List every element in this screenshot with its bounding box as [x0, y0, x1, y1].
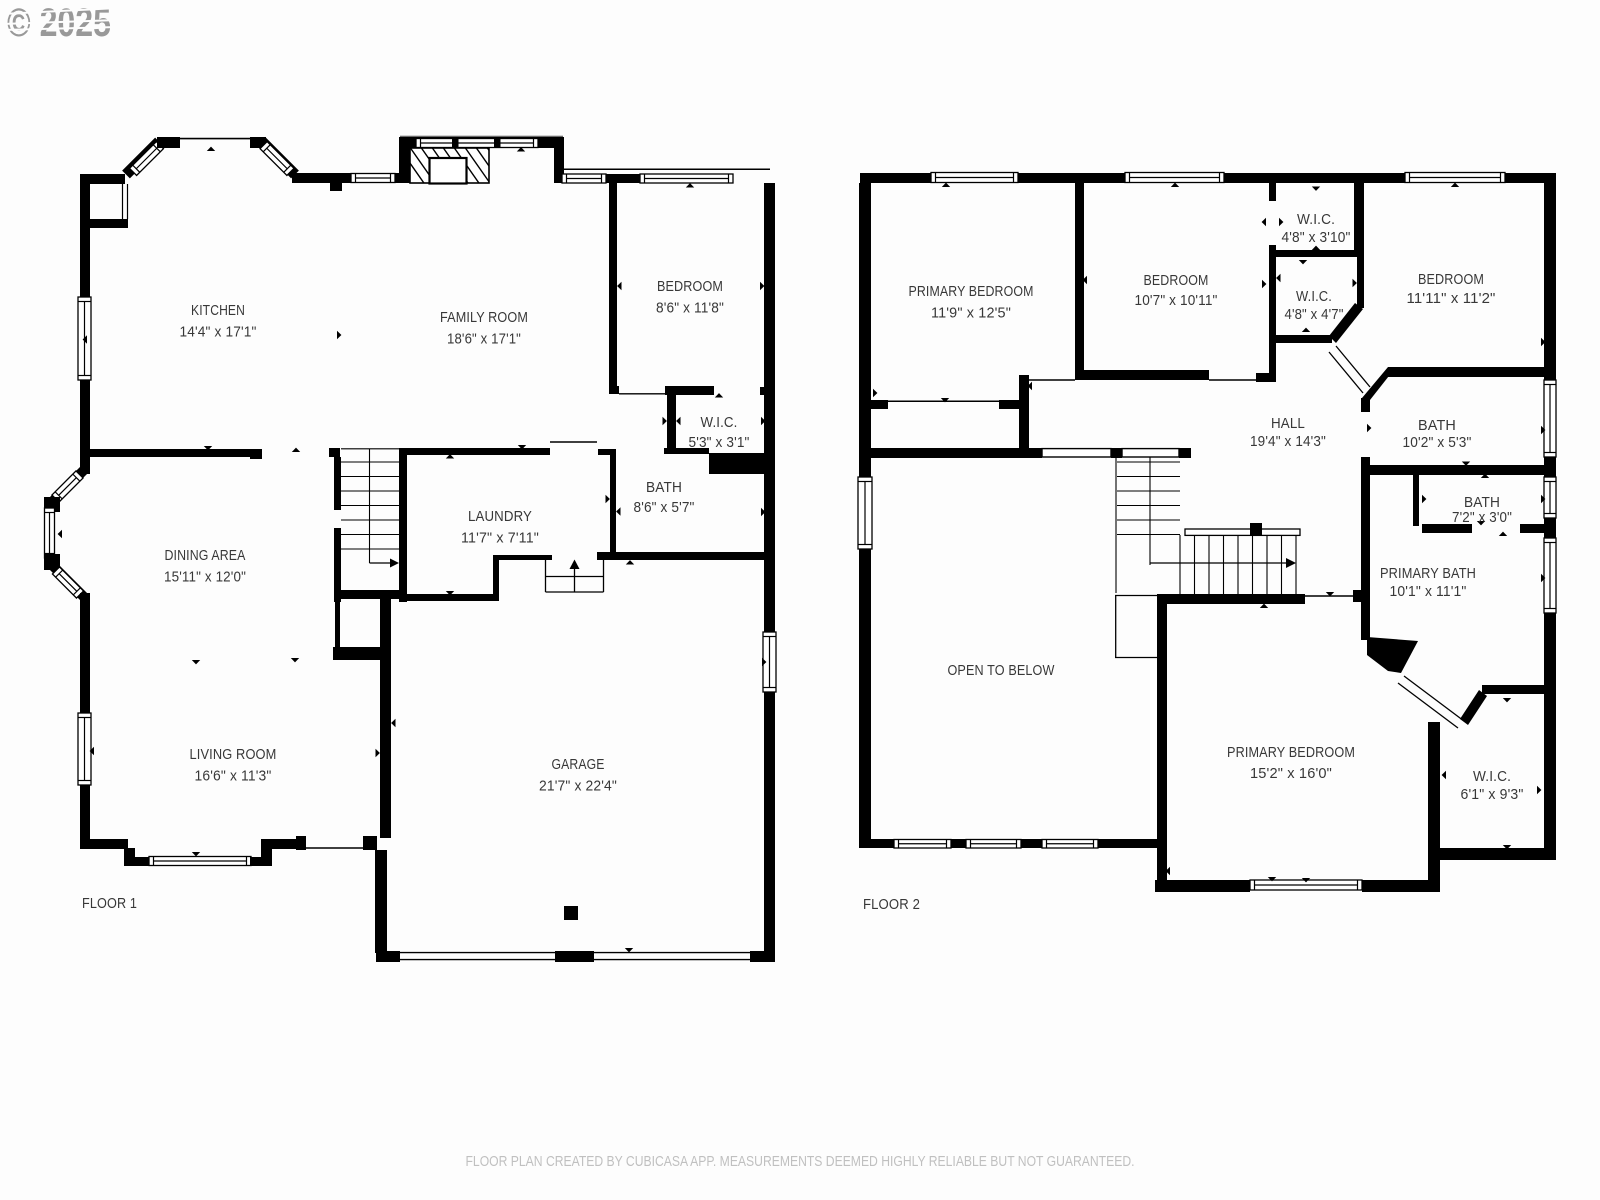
- svg-text:BEDROOM: BEDROOM: [1418, 271, 1484, 288]
- svg-text:PRIMARY BATH: PRIMARY BATH: [1380, 565, 1476, 582]
- svg-text:6'1" x 9'3": 6'1" x 9'3": [1461, 786, 1524, 803]
- svg-text:11'11" x 11'2": 11'11" x 11'2": [1407, 290, 1496, 307]
- svg-text:8'6" x 5'7": 8'6" x 5'7": [634, 499, 695, 516]
- svg-text:8'6" x 11'8": 8'6" x 11'8": [656, 300, 724, 317]
- svg-text:BATH: BATH: [1418, 417, 1456, 434]
- svg-text:15'11" x 12'0": 15'11" x 12'0": [164, 569, 246, 586]
- svg-text:OPEN TO BELOW: OPEN TO BELOW: [948, 662, 1056, 679]
- svg-text:5'3" x 3'1": 5'3" x 3'1": [689, 434, 750, 451]
- svg-text:BEDROOM: BEDROOM: [657, 278, 723, 295]
- svg-text:21'7" x 22'4": 21'7" x 22'4": [539, 778, 617, 795]
- svg-text:FAMILY ROOM: FAMILY ROOM: [440, 309, 528, 326]
- svg-text:W.I.C.: W.I.C.: [1297, 211, 1335, 228]
- svg-text:4'8" x 4'7": 4'8" x 4'7": [1285, 306, 1344, 323]
- svg-text:LIVING ROOM: LIVING ROOM: [190, 746, 277, 763]
- svg-text:10'1" x 11'1": 10'1" x 11'1": [1390, 583, 1467, 600]
- svg-text:FLOOR 1: FLOOR 1: [82, 895, 137, 912]
- svg-text:11'7" x 7'11": 11'7" x 7'11": [461, 530, 539, 547]
- svg-text:GARAGE: GARAGE: [552, 756, 605, 773]
- svg-text:BATH: BATH: [646, 479, 682, 496]
- svg-text:FLOOR 2: FLOOR 2: [863, 896, 920, 913]
- svg-text:16'6" x 11'3": 16'6" x 11'3": [195, 768, 272, 785]
- svg-text:PRIMARY BEDROOM: PRIMARY BEDROOM: [909, 283, 1034, 300]
- svg-text:14'4" x 17'1": 14'4" x 17'1": [180, 324, 257, 341]
- svg-text:FLOOR PLAN CREATED BY CUBICASA: FLOOR PLAN CREATED BY CUBICASA APP. MEAS…: [466, 1153, 1135, 1170]
- svg-text:W.I.C.: W.I.C.: [701, 414, 738, 431]
- svg-text:LAUNDRY: LAUNDRY: [468, 508, 532, 525]
- svg-text:PRIMARY BEDROOM: PRIMARY BEDROOM: [1227, 744, 1355, 761]
- svg-text:4'8" x 3'10": 4'8" x 3'10": [1282, 229, 1351, 246]
- svg-text:15'2" x 16'0": 15'2" x 16'0": [1250, 765, 1332, 782]
- svg-text:W.I.C.: W.I.C.: [1296, 288, 1332, 305]
- svg-text:7'2" x 3'0": 7'2" x 3'0": [1452, 509, 1512, 526]
- svg-text:HALL: HALL: [1271, 415, 1305, 432]
- svg-text:KITCHEN: KITCHEN: [191, 302, 245, 319]
- svg-text:W.I.C.: W.I.C.: [1473, 768, 1511, 785]
- svg-text:10'7" x 10'11": 10'7" x 10'11": [1135, 292, 1218, 309]
- svg-text:10'2" x 5'3": 10'2" x 5'3": [1403, 434, 1472, 451]
- svg-text:11'9" x 12'5": 11'9" x 12'5": [931, 305, 1011, 322]
- svg-text:18'6" x 17'1": 18'6" x 17'1": [447, 331, 521, 348]
- svg-text:DINING AREA: DINING AREA: [165, 547, 246, 564]
- svg-text:BEDROOM: BEDROOM: [1144, 272, 1209, 289]
- svg-text:19'4" x 14'3": 19'4" x 14'3": [1250, 433, 1326, 450]
